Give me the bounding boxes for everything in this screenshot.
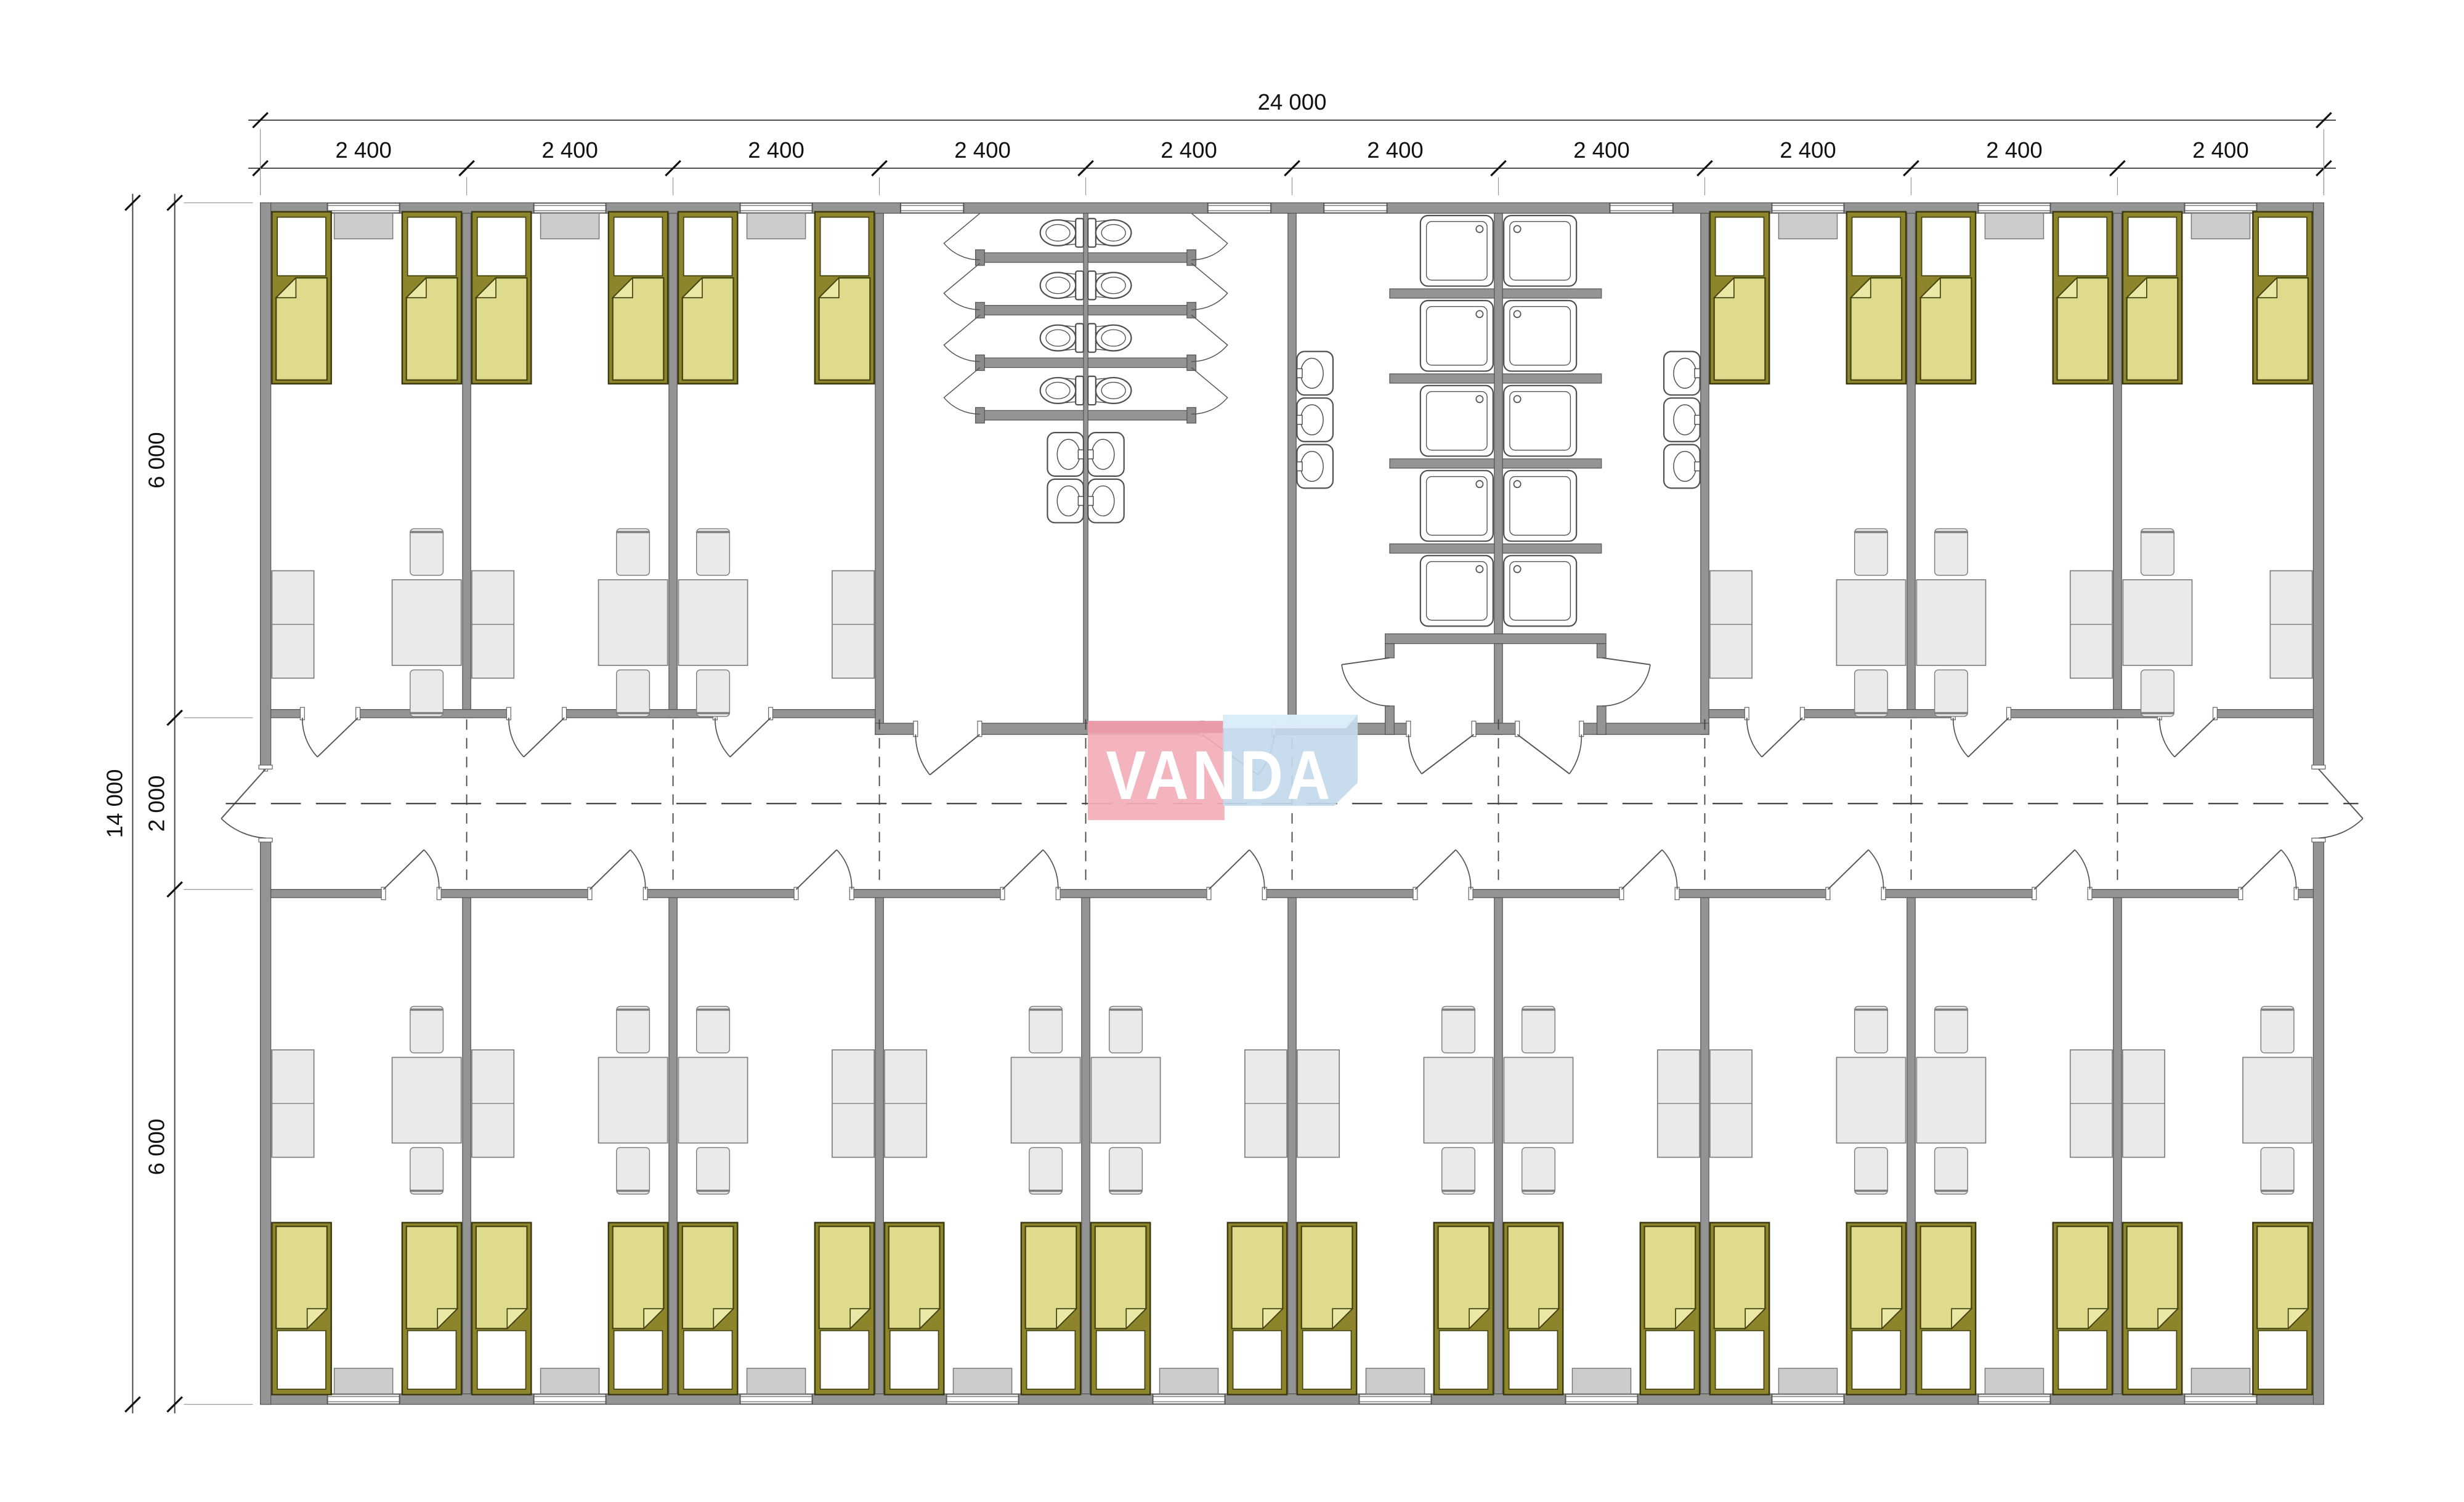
- bed: [402, 1223, 461, 1395]
- locker: [1297, 1050, 1339, 1157]
- bed: [1504, 1223, 1563, 1395]
- shower-tray: [1504, 386, 1576, 457]
- toilet-cistern: [1076, 219, 1084, 247]
- bed-pillow: [1096, 1331, 1145, 1389]
- stall-post: [1187, 355, 1196, 370]
- bed: [1710, 1223, 1769, 1395]
- door-leaf: [590, 850, 631, 889]
- dimension-label: 2 400: [1573, 137, 1630, 163]
- shower-tray: [1420, 301, 1493, 371]
- vestibule-side-wall: [1597, 706, 1606, 734]
- door-leaf: [2174, 718, 2215, 757]
- wc-stall-divider: [1088, 410, 1187, 420]
- door-arc: [424, 850, 439, 889]
- stall-post: [976, 407, 985, 423]
- chair: [1522, 1148, 1555, 1195]
- bed-pillow: [477, 217, 526, 276]
- basin-tap: [1088, 497, 1093, 506]
- table: [392, 1057, 461, 1143]
- basin-tap: [1297, 415, 1302, 424]
- chair: [2141, 529, 2174, 575]
- bed-pillow: [614, 217, 663, 276]
- bed: [815, 1223, 874, 1395]
- washbasin: [1297, 445, 1333, 489]
- door-leaf: [1415, 850, 1456, 889]
- door-leaf: [1621, 850, 1662, 889]
- dimension-label: 2 400: [541, 137, 598, 163]
- toilet-cistern: [1088, 271, 1096, 299]
- shower-divider: [1390, 459, 1494, 468]
- door-arc: [1570, 734, 1582, 774]
- chair: [617, 1006, 650, 1053]
- door-arc: [1602, 665, 1650, 706]
- door-arc: [302, 718, 317, 757]
- door-leaf: [1002, 850, 1043, 889]
- fixture-layer: [944, 213, 1700, 626]
- wc-stall-divider: [984, 253, 1084, 262]
- corridor-wall: [1058, 890, 1209, 898]
- dimension-label: 2 400: [748, 137, 804, 163]
- bed-pillow: [408, 1331, 456, 1389]
- bed: [2253, 1223, 2312, 1395]
- bed: [1710, 212, 1769, 384]
- chair: [1855, 529, 1888, 575]
- logo-block-blue-bevel: [1223, 715, 1358, 728]
- west-wall: [261, 203, 271, 769]
- corridor-wall: [271, 710, 302, 718]
- bed-pillow: [1852, 1331, 1901, 1389]
- locker: [1245, 1050, 1287, 1157]
- table: [1504, 1057, 1573, 1143]
- washbasin: [1297, 351, 1333, 395]
- chair: [410, 529, 444, 575]
- corridor-wall: [2215, 710, 2313, 718]
- bed: [885, 1223, 944, 1395]
- table: [1424, 1057, 1493, 1143]
- logo-layer: VANDA: [1088, 715, 1358, 820]
- door-leaf: [796, 850, 837, 889]
- door-leaf: [1762, 718, 1802, 757]
- room-divider-wall: [1907, 213, 1915, 718]
- wc-stall-divider: [1088, 253, 1187, 262]
- shower-divider: [1390, 289, 1494, 298]
- wc-stall-divider: [984, 358, 1084, 368]
- dimension-label: 2 400: [1161, 137, 1217, 163]
- chair: [697, 529, 730, 575]
- shower-tray: [1504, 556, 1576, 627]
- washbasin: [1664, 445, 1700, 489]
- wc-stall-divider: [984, 410, 1084, 420]
- bed: [1091, 1223, 1150, 1395]
- dimension-label: 2 400: [1367, 137, 1424, 163]
- chair: [2141, 670, 2174, 716]
- logo-text: VANDA: [1106, 736, 1334, 814]
- east-wall: [2313, 203, 2324, 769]
- door-jamb: [1406, 721, 1411, 736]
- door-leaf: [384, 850, 424, 889]
- chair: [697, 1148, 730, 1195]
- chair: [697, 670, 730, 716]
- stall-door: [944, 213, 980, 260]
- locker: [1658, 1050, 1700, 1157]
- bed: [815, 212, 874, 384]
- bed-pillow: [684, 1331, 732, 1389]
- door-leaf: [221, 769, 265, 818]
- bed-pillow: [2128, 1331, 2177, 1389]
- bed-pillow: [1027, 1331, 1076, 1389]
- shower-divider: [1502, 374, 1602, 383]
- bed: [2053, 1223, 2112, 1395]
- bed: [1847, 212, 1906, 384]
- shower-divider: [1502, 459, 1602, 468]
- chair: [1935, 529, 1968, 575]
- bed-pillow: [1646, 1331, 1695, 1389]
- toilet: [1088, 323, 1131, 352]
- door-leaf: [1517, 734, 1570, 774]
- basin-tap: [1297, 462, 1302, 471]
- door-leaf: [1209, 850, 1249, 889]
- bed: [472, 1223, 531, 1395]
- vestibule-side-wall: [1385, 644, 1395, 658]
- basin-tap: [1078, 450, 1084, 459]
- door-arc: [1662, 850, 1677, 889]
- stall-door: [944, 368, 980, 415]
- washbasin: [1664, 398, 1700, 442]
- bed: [1916, 212, 1976, 384]
- door-jamb: [1472, 721, 1476, 736]
- vestibule-side-wall: [1597, 644, 1606, 658]
- chair: [1855, 1006, 1888, 1053]
- bed-pillow: [821, 217, 869, 276]
- basin-tap: [1695, 369, 1700, 378]
- dimension-label: 2 400: [1780, 137, 1836, 163]
- shower-tray: [1420, 556, 1493, 627]
- dimension-label: 14 000: [102, 769, 127, 838]
- door-leaf: [1968, 718, 2009, 757]
- window-sill: [1572, 1368, 1631, 1394]
- window-sill: [2191, 1368, 2250, 1394]
- shower-divider: [1502, 289, 1602, 298]
- fan-door-leaf: [1342, 658, 1390, 665]
- door-arc: [1456, 850, 1470, 889]
- bed-pillow: [2128, 217, 2177, 276]
- bed-pillow: [408, 217, 456, 276]
- bed: [1640, 1223, 1700, 1395]
- window-sill: [1778, 213, 1837, 238]
- corridor-wall: [1471, 890, 1622, 898]
- bed: [678, 212, 737, 384]
- toilet: [1088, 219, 1131, 247]
- bed: [1916, 1223, 1976, 1395]
- bed: [609, 212, 668, 384]
- table: [599, 1057, 668, 1143]
- door-leaf: [524, 718, 564, 757]
- table: [678, 580, 747, 665]
- dimension-label: 2 400: [954, 137, 1011, 163]
- bed-pillow: [821, 1331, 869, 1389]
- bed-pillow: [1509, 1331, 1558, 1389]
- toilet: [1088, 271, 1131, 299]
- door-jamb: [1579, 721, 1584, 736]
- table: [1091, 1057, 1160, 1143]
- room-divider-wall: [463, 213, 471, 718]
- corridor-wall: [1884, 890, 2035, 898]
- bed-pillow: [2059, 217, 2107, 276]
- washbasin: [1088, 479, 1124, 523]
- corridor-wall-wet: [875, 723, 915, 734]
- shower-tray: [1420, 471, 1493, 542]
- wc-stall-divider: [1088, 358, 1187, 368]
- door-arc: [1043, 850, 1058, 889]
- room-divider-wall: [875, 890, 883, 1394]
- door-arc: [221, 819, 265, 838]
- basin-tap: [1297, 369, 1302, 378]
- bed-pillow: [1303, 1331, 1352, 1389]
- bed-pillow: [277, 217, 326, 276]
- corridor-wall: [771, 710, 875, 718]
- locker: [832, 1050, 874, 1157]
- door-arc: [1408, 734, 1421, 774]
- bed-pillow: [1716, 217, 1764, 276]
- locker: [2070, 570, 2112, 678]
- shower-tray: [1504, 216, 1576, 286]
- room-divider-wall: [1288, 213, 1296, 734]
- window-sill: [1159, 1368, 1218, 1394]
- room-divider-wall: [1494, 890, 1502, 1394]
- locker: [832, 570, 874, 678]
- shower-tray: [1504, 301, 1576, 371]
- chair: [1935, 1006, 1968, 1053]
- stall-post: [976, 250, 985, 265]
- table: [392, 580, 461, 665]
- locker: [2070, 1050, 2112, 1157]
- corridor-wall: [2009, 710, 2160, 718]
- door-leaf: [2034, 850, 2075, 889]
- table: [678, 1057, 747, 1143]
- door-jamb: [2312, 838, 2325, 842]
- bed: [2123, 212, 2182, 384]
- chair: [1029, 1148, 1063, 1195]
- bed: [1847, 1223, 1906, 1395]
- shower-divider: [1390, 374, 1494, 383]
- locker: [272, 1050, 314, 1157]
- chair: [1522, 1006, 1555, 1053]
- corridor-wall: [439, 890, 590, 898]
- door-arc: [1342, 665, 1390, 706]
- chair: [1029, 1006, 1063, 1053]
- window-sill: [954, 1368, 1012, 1394]
- chair: [2261, 1148, 2294, 1195]
- door-leaf: [930, 734, 979, 775]
- basin-tap: [1695, 415, 1700, 424]
- window-sill: [541, 1368, 599, 1394]
- door-jamb: [259, 765, 272, 769]
- toilet-cistern: [1076, 323, 1084, 352]
- bed-pillow: [614, 1331, 663, 1389]
- locker: [472, 570, 514, 678]
- stall-door: [1191, 213, 1228, 260]
- door-arc: [1249, 850, 1264, 889]
- window-sill: [1366, 1368, 1424, 1394]
- stall-post: [1187, 407, 1196, 423]
- window-sill: [1985, 213, 2043, 238]
- door-arc: [837, 850, 851, 889]
- toilet: [1040, 323, 1084, 352]
- chair: [1109, 1148, 1143, 1195]
- fan-door-leaf: [1602, 658, 1650, 665]
- wc-stall-divider: [984, 306, 1084, 315]
- dimension-label: 2 400: [335, 137, 392, 163]
- chair: [410, 670, 444, 716]
- door-arc: [509, 718, 524, 757]
- stall-door: [1191, 368, 1228, 415]
- bed: [2253, 212, 2312, 384]
- door-arc: [2160, 718, 2174, 757]
- door-leaf: [2319, 769, 2363, 818]
- corridor-wall: [646, 890, 796, 898]
- bed: [272, 212, 331, 384]
- bed: [678, 1223, 737, 1395]
- logo-block-pink-bevel: [1088, 721, 1225, 733]
- stall-door: [944, 315, 980, 362]
- door-leaf: [2240, 850, 2281, 889]
- window-sill: [2191, 213, 2250, 238]
- chair: [1442, 1006, 1475, 1053]
- bed-pillow: [477, 1331, 526, 1389]
- room-divider-wall: [2113, 213, 2122, 718]
- table: [1916, 1057, 1985, 1143]
- washbasin: [1088, 432, 1124, 476]
- bed-pillow: [890, 1331, 939, 1389]
- bed: [1434, 1223, 1493, 1395]
- room-divider-wall: [1494, 213, 1502, 734]
- washbasin: [1047, 479, 1084, 523]
- room-divider-wall: [1701, 890, 1709, 1394]
- chair: [1442, 1148, 1475, 1195]
- table: [1916, 580, 1985, 665]
- table: [1836, 1057, 1905, 1143]
- bed-pillow: [1716, 1331, 1764, 1389]
- bed: [402, 212, 461, 384]
- bed: [1021, 1223, 1080, 1395]
- toilet-cistern: [1076, 271, 1084, 299]
- shower-tray: [1504, 471, 1576, 542]
- locker: [272, 570, 314, 678]
- corridor-wall: [1265, 890, 1416, 898]
- toilet: [1040, 271, 1084, 299]
- chair: [410, 1006, 444, 1053]
- washbasin: [1047, 432, 1084, 476]
- chair: [617, 529, 650, 575]
- chair: [1935, 670, 1968, 716]
- locker: [2270, 570, 2312, 678]
- table: [1836, 580, 1905, 665]
- door-leaf: [317, 718, 358, 757]
- chair: [697, 1006, 730, 1053]
- chair: [1109, 1006, 1143, 1053]
- bed-pillow: [2258, 217, 2307, 276]
- window-sill: [334, 1368, 393, 1394]
- corridor-wall: [2090, 890, 2241, 898]
- window-sill: [1985, 1368, 2043, 1394]
- bed-pillow: [1233, 1331, 1282, 1389]
- bed: [2053, 212, 2112, 384]
- door-arc: [715, 718, 730, 757]
- toilet-cistern: [1088, 323, 1096, 352]
- stall-post: [1187, 250, 1196, 265]
- room-divider-wall: [1082, 890, 1090, 1394]
- door-jamb: [914, 721, 918, 736]
- bed-pillow: [2258, 1331, 2307, 1389]
- chair: [617, 1148, 650, 1195]
- shower-divider: [1502, 544, 1602, 553]
- basin-tap: [1695, 462, 1700, 471]
- washbasin: [1297, 398, 1333, 442]
- basin-tap: [1078, 497, 1084, 506]
- bed: [1297, 1223, 1356, 1395]
- bed-pillow: [1922, 217, 1971, 276]
- door-arc: [2075, 850, 2089, 889]
- chair: [1855, 670, 1888, 716]
- door-leaf: [1828, 850, 1868, 889]
- door-arc: [2281, 850, 2296, 889]
- logo: VANDA: [1088, 715, 1358, 820]
- dimension-label: 2 000: [144, 776, 169, 832]
- window-sill: [334, 213, 393, 238]
- dimension-label: 24 000: [1258, 89, 1327, 115]
- bed-pillow: [1440, 1331, 1488, 1389]
- corridor-wall: [2296, 890, 2314, 898]
- table: [2123, 580, 2192, 665]
- door-arc: [1747, 718, 1762, 757]
- room-divider-wall: [1701, 213, 1709, 734]
- toilet-cistern: [1088, 219, 1096, 247]
- shower-tray: [1420, 386, 1493, 457]
- window-sill: [541, 213, 599, 238]
- bed: [272, 1223, 331, 1395]
- door-jamb: [1515, 721, 1520, 736]
- table: [2243, 1057, 2312, 1143]
- chair: [1935, 1148, 1968, 1195]
- bed-pillow: [1852, 217, 1901, 276]
- table: [1011, 1057, 1080, 1143]
- chair: [2261, 1006, 2294, 1053]
- window-sill: [1778, 1368, 1837, 1394]
- corridor-wall: [271, 890, 384, 898]
- bed: [1228, 1223, 1287, 1395]
- chair: [1855, 1148, 1888, 1195]
- door-leaf: [730, 718, 771, 757]
- chair: [410, 1148, 444, 1195]
- bed-pillow: [277, 1331, 326, 1389]
- toilet: [1040, 376, 1084, 405]
- toilet: [1040, 219, 1084, 247]
- locker: [1710, 570, 1752, 678]
- bed-pillow: [1922, 1331, 1971, 1389]
- dimension-label: 2 400: [1986, 137, 2043, 163]
- toilet-cistern: [1076, 376, 1084, 405]
- washbasin: [1664, 351, 1700, 395]
- corridor-wall-wet: [1474, 723, 1518, 734]
- stall-door: [944, 263, 980, 310]
- corridor-wall: [1709, 710, 1747, 718]
- room-divider-wall: [463, 890, 471, 1394]
- shower-tray: [1420, 216, 1493, 286]
- bed-pillow: [2059, 1331, 2107, 1389]
- locker: [885, 1050, 926, 1157]
- vestibule-side-wall: [1385, 706, 1395, 734]
- door-arc: [1868, 850, 1883, 889]
